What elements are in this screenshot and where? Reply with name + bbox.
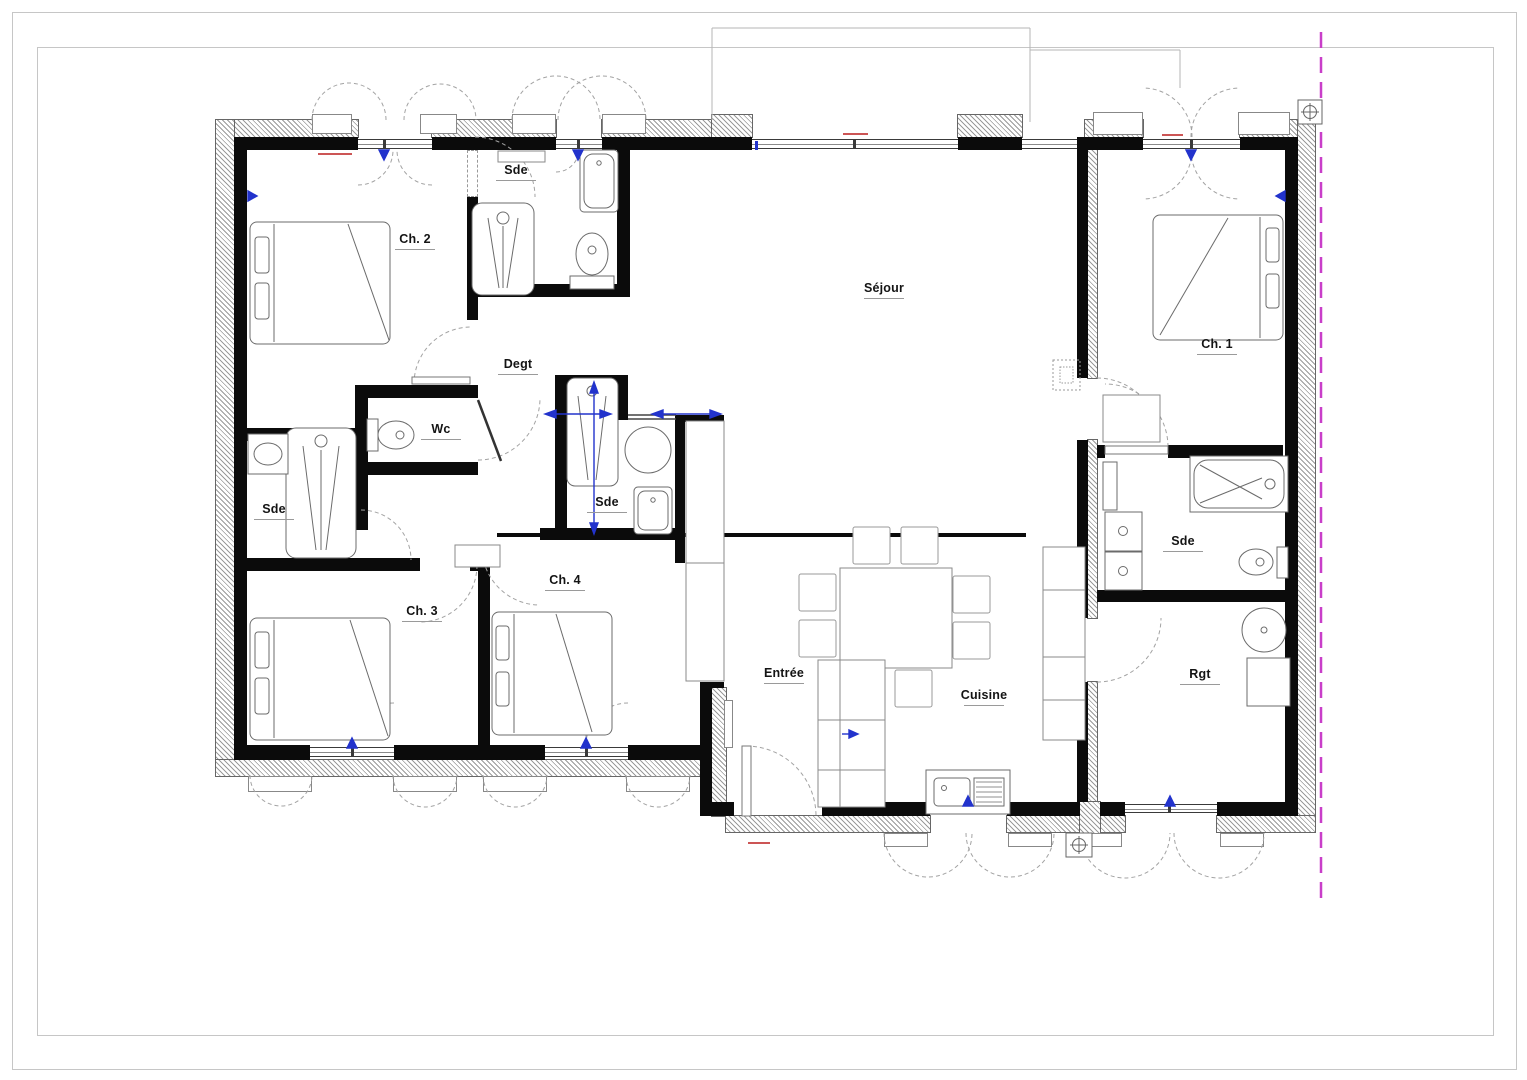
- wall-segment: [355, 385, 478, 398]
- shower-icon-sde-top: [472, 203, 534, 295]
- shutter-box: [420, 114, 457, 134]
- context-lines: [712, 28, 1180, 122]
- shutter-box: [483, 776, 547, 792]
- kitchen-counter: [818, 547, 1085, 807]
- wall-segment: [497, 533, 1026, 537]
- wall-segment: [1077, 682, 1088, 802]
- wall-segment: [1097, 445, 1105, 458]
- window: [1125, 804, 1217, 813]
- dresser-ch1: [1103, 395, 1160, 442]
- window-mullion: [1168, 804, 1171, 813]
- shutter-box: [1093, 112, 1143, 135]
- wall-segment: [1097, 137, 1143, 150]
- room-label-ch3: Ch. 3: [387, 604, 457, 622]
- bathtub-icon-sde-top: [580, 150, 618, 212]
- wall-segment: [958, 137, 1022, 150]
- window-mullion: [383, 139, 386, 149]
- shutter-box: [1220, 833, 1264, 847]
- shutter-box: [602, 114, 646, 134]
- wall-segment: [555, 375, 620, 387]
- room-label-wc: Wc: [406, 422, 476, 440]
- shutter-box: [393, 776, 457, 792]
- wall-segment: [355, 428, 368, 530]
- window-mullion: [1190, 139, 1193, 149]
- wall-segment: [1285, 137, 1298, 802]
- wall-segment: [1077, 440, 1088, 618]
- sink-icons-sde-right: [1103, 462, 1142, 590]
- exterior-wall-hatch: [1217, 816, 1315, 832]
- toilet-icon-sde-right: [1239, 547, 1288, 578]
- wall-segment: [368, 558, 420, 571]
- room-label-ch2: Ch. 2: [380, 232, 450, 250]
- exterior-wall-hatch: [1088, 150, 1097, 378]
- stove-dashed-square: [1053, 360, 1080, 390]
- wall-segment: [355, 462, 478, 475]
- shutter-box: [1082, 833, 1122, 847]
- bed-ch2-icon: [250, 222, 390, 344]
- wardrobe-column: [686, 421, 724, 681]
- wall-segment: [234, 428, 368, 441]
- exterior-wall-hatch: [216, 120, 234, 776]
- wall-segment: [617, 375, 628, 420]
- wall-segment: [1168, 445, 1283, 458]
- floor-plan-sheet: Sde Ch. 2 Séjour Ch. 1 Degt Wc Sde Sde S…: [0, 0, 1527, 1080]
- wall-segment: [394, 745, 545, 760]
- exterior-wall-hatch: [958, 115, 1022, 137]
- shower-icon-sde-left: [286, 428, 356, 558]
- wall-segment: [1217, 802, 1298, 816]
- wall-segment: [675, 415, 685, 563]
- sink-icon-sde-middle-round: [625, 427, 671, 473]
- room-label-cuisine: Cuisine: [949, 688, 1019, 706]
- shutter-box: [884, 833, 928, 847]
- wall-segment: [700, 682, 724, 688]
- wall-segment: [555, 375, 567, 540]
- washing-machine-icon: [1242, 608, 1290, 706]
- wall-segment: [234, 137, 358, 150]
- window-mullion: [577, 139, 580, 149]
- shelf-sde-top: [498, 151, 545, 162]
- wall-segment: [1100, 802, 1125, 816]
- wall-segment: [234, 745, 310, 760]
- wall-segment: [712, 802, 734, 816]
- exterior-wall-hatch: [1088, 440, 1097, 618]
- window-mullion: [853, 139, 856, 149]
- shutter-box: [724, 700, 733, 748]
- room-label-rgt: Rgt: [1165, 667, 1235, 685]
- dining-chairs: [799, 527, 990, 707]
- wall-segment: [1007, 802, 1080, 816]
- room-label-sejour: Séjour: [849, 281, 919, 299]
- exterior-wall-hatch: [712, 115, 752, 137]
- room-label-sde-top: Sde: [481, 163, 551, 181]
- room-label-degt: Degt: [483, 357, 553, 375]
- shutter-box: [626, 776, 690, 792]
- wall-segment: [1097, 590, 1285, 602]
- room-label-ch4: Ch. 4: [530, 573, 600, 591]
- window-mullion: [351, 747, 354, 757]
- wall-segment: [617, 150, 630, 297]
- exterior-wall-hatch: [1007, 816, 1125, 832]
- wall-segment: [467, 197, 478, 320]
- shutter-box: [248, 776, 312, 792]
- wall-segment: [478, 558, 490, 745]
- toilet-icon-sde-top: [570, 233, 614, 289]
- dining-table: [840, 568, 952, 668]
- window: [1022, 139, 1077, 149]
- shutter-box: [1238, 112, 1290, 135]
- wall-segment: [234, 137, 247, 760]
- wall-segment: [1077, 137, 1097, 150]
- wall-segment: [822, 802, 930, 816]
- shutter-box: [512, 114, 556, 134]
- exterior-wall-hatch: [216, 760, 712, 776]
- wall-segment: [700, 682, 712, 816]
- bed-ch4-icon: [492, 612, 612, 735]
- bed-ch1-icon: [1153, 215, 1283, 340]
- room-label-ch1: Ch. 1: [1182, 337, 1252, 355]
- room-label-sde-middle: Sde: [572, 495, 642, 513]
- bathtub-icon-sde-right: [1190, 456, 1288, 512]
- sheet-inner-border: [37, 47, 1494, 1036]
- window-mullion: [966, 804, 969, 813]
- wall-segment: [602, 137, 752, 150]
- survey-marker-icon: [1066, 100, 1322, 857]
- shutter-box: [1008, 833, 1052, 847]
- bed-ch3-icon: [250, 618, 390, 740]
- window: [358, 139, 432, 149]
- room-label-sde-left: Sde: [239, 502, 309, 520]
- wall-segment: [432, 137, 556, 150]
- wall-segment: [1077, 150, 1088, 378]
- wall-segment: [467, 284, 630, 297]
- window-mullion: [585, 747, 588, 757]
- shutter-box: [312, 114, 352, 134]
- room-label-entree: Entrée: [749, 666, 819, 684]
- room-label-sde-right: Sde: [1148, 534, 1218, 552]
- wall-segment: [234, 558, 368, 571]
- exterior-wall-hatch: [1088, 682, 1097, 802]
- exterior-wall-hatch: [1298, 120, 1315, 832]
- shower-icon-sde-middle: [567, 378, 618, 486]
- wall-segment: [470, 558, 478, 571]
- exterior-wall-hatch: [726, 816, 930, 832]
- opening-dashed: [467, 150, 478, 197]
